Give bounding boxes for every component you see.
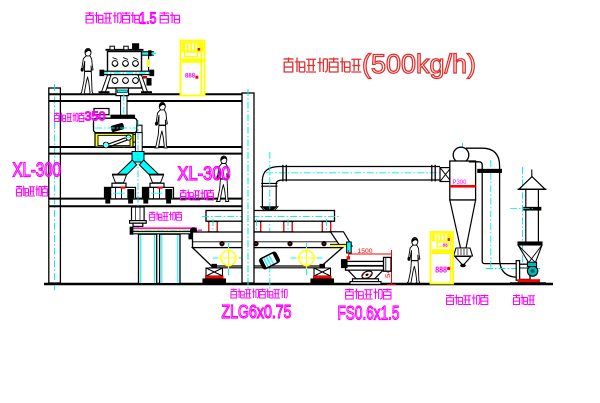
svg-text:(500kg/h): (500kg/h) (362, 49, 476, 79)
svg-text:1500: 1500 (358, 248, 373, 255)
svg-text:888: 888 (185, 73, 196, 80)
svg-text:88: 88 (443, 242, 449, 247)
svg-text:1.5: 1.5 (139, 11, 157, 28)
svg-text:P300: P300 (453, 179, 467, 186)
svg-text:XL-300: XL-300 (178, 164, 231, 185)
svg-text:FS0.6x1.5: FS0.6x1.5 (338, 304, 400, 325)
svg-text:888: 888 (435, 265, 447, 274)
svg-text:350: 350 (85, 109, 106, 124)
svg-text:ZLG6x0.75: ZLG6x0.75 (222, 302, 292, 322)
svg-text:XL-300: XL-300 (13, 160, 62, 182)
